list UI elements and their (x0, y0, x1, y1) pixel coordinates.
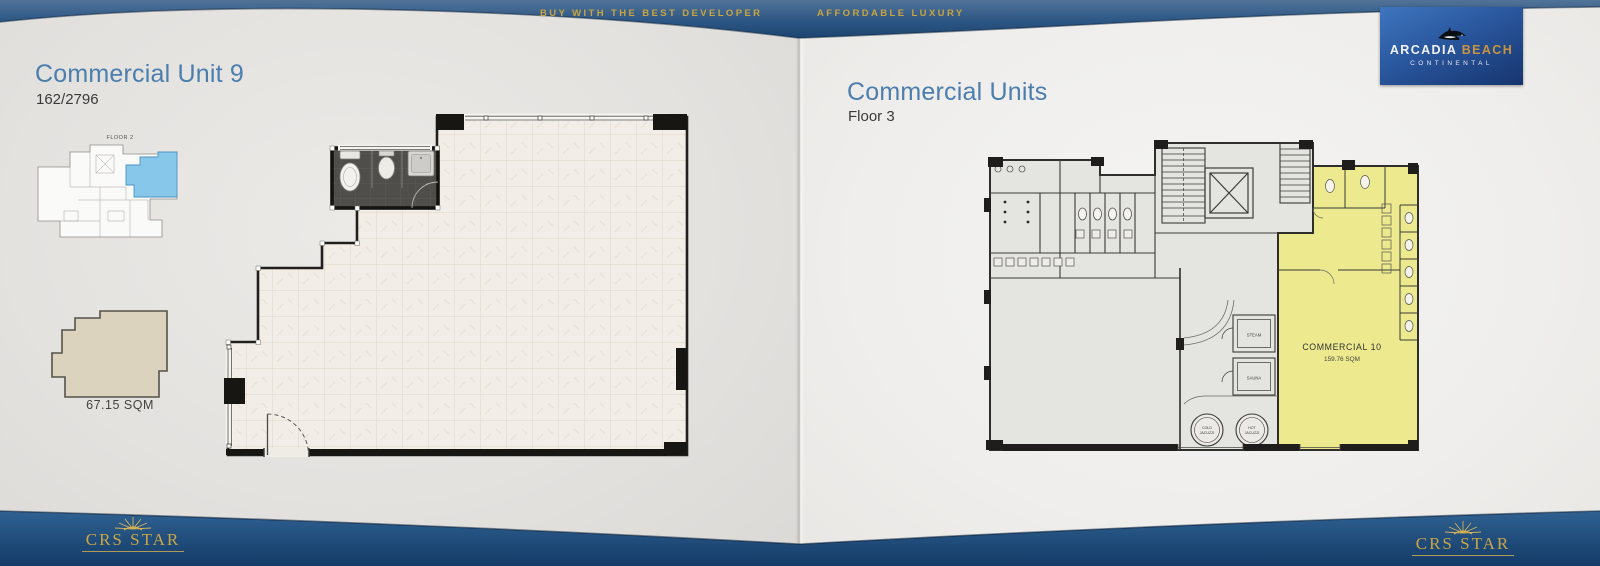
top-band (0, 0, 1600, 60)
arcadia-beach-logo: ARCADIA BEACH CONTINENTAL (1380, 7, 1523, 85)
cold-jacuzzi-label-1: COLD (1202, 426, 1212, 430)
cold-jacuzzi-label-2: JACUZZI (1200, 431, 1215, 435)
hot-jacuzzi-label-2: JACUZZI (1245, 431, 1260, 435)
commercial10-area-label: 159.76 SQM (1324, 356, 1360, 363)
brand-name: CRS STAR (1412, 534, 1514, 556)
floor-key-thumbnail: FLOOR 2 (30, 125, 210, 245)
slogan-left: BUY WITH THE BEST DEVELOPER (540, 8, 762, 19)
right-page-subtitle: Floor 3 (848, 108, 895, 125)
sauna-room-label: SAUNA (1247, 376, 1262, 381)
urinal-icon (379, 151, 395, 179)
hot-jacuzzi-label-1: HOT (1248, 426, 1256, 430)
unit-area-label: 67.15 SQM (55, 398, 185, 412)
bottom-band (0, 496, 1600, 566)
steam-room-label: STEAM (1247, 333, 1262, 338)
brand-name: CRS STAR (82, 530, 184, 552)
logo-subtitle: CONTINENTAL (1410, 60, 1493, 67)
left-page-subtitle: 162/2796 (36, 91, 99, 108)
page-spine-divider (796, 0, 804, 566)
logo-title: ARCADIA BEACH (1390, 43, 1513, 57)
window-top (463, 114, 669, 121)
toilet-icon (340, 151, 360, 191)
unit-outline (228, 117, 687, 455)
logo-name-primary: ARCADIA (1390, 43, 1457, 57)
bathroom (332, 145, 438, 208)
floor3-plan: STEAM SAUNA COLD JACUZZI HOT JACUZZI (980, 138, 1428, 463)
commercial10-name-label: COMMERCIAL 10 (1302, 342, 1381, 352)
crs-star-logo-left: CRS STAR (38, 515, 228, 552)
large-floor-plan (220, 108, 695, 463)
thumbnail-floor-label: FLOOR 2 (106, 135, 133, 141)
slogan-right: AFFORDABLE LUXURY (817, 8, 965, 19)
crs-star-logo-right: CRS STAR (1368, 519, 1558, 556)
right-page-title: Commercial Units (847, 78, 1047, 107)
common-area (990, 143, 1313, 450)
orca-icon (1435, 26, 1469, 41)
logo-name-secondary: BEACH (1462, 43, 1513, 57)
brochure-spread: BUY WITH THE BEST DEVELOPER AFFORDABLE L… (0, 0, 1600, 566)
left-page-title: Commercial Unit 9 (35, 60, 244, 89)
unit-silhouette (40, 295, 180, 410)
sink-icon (408, 151, 434, 176)
